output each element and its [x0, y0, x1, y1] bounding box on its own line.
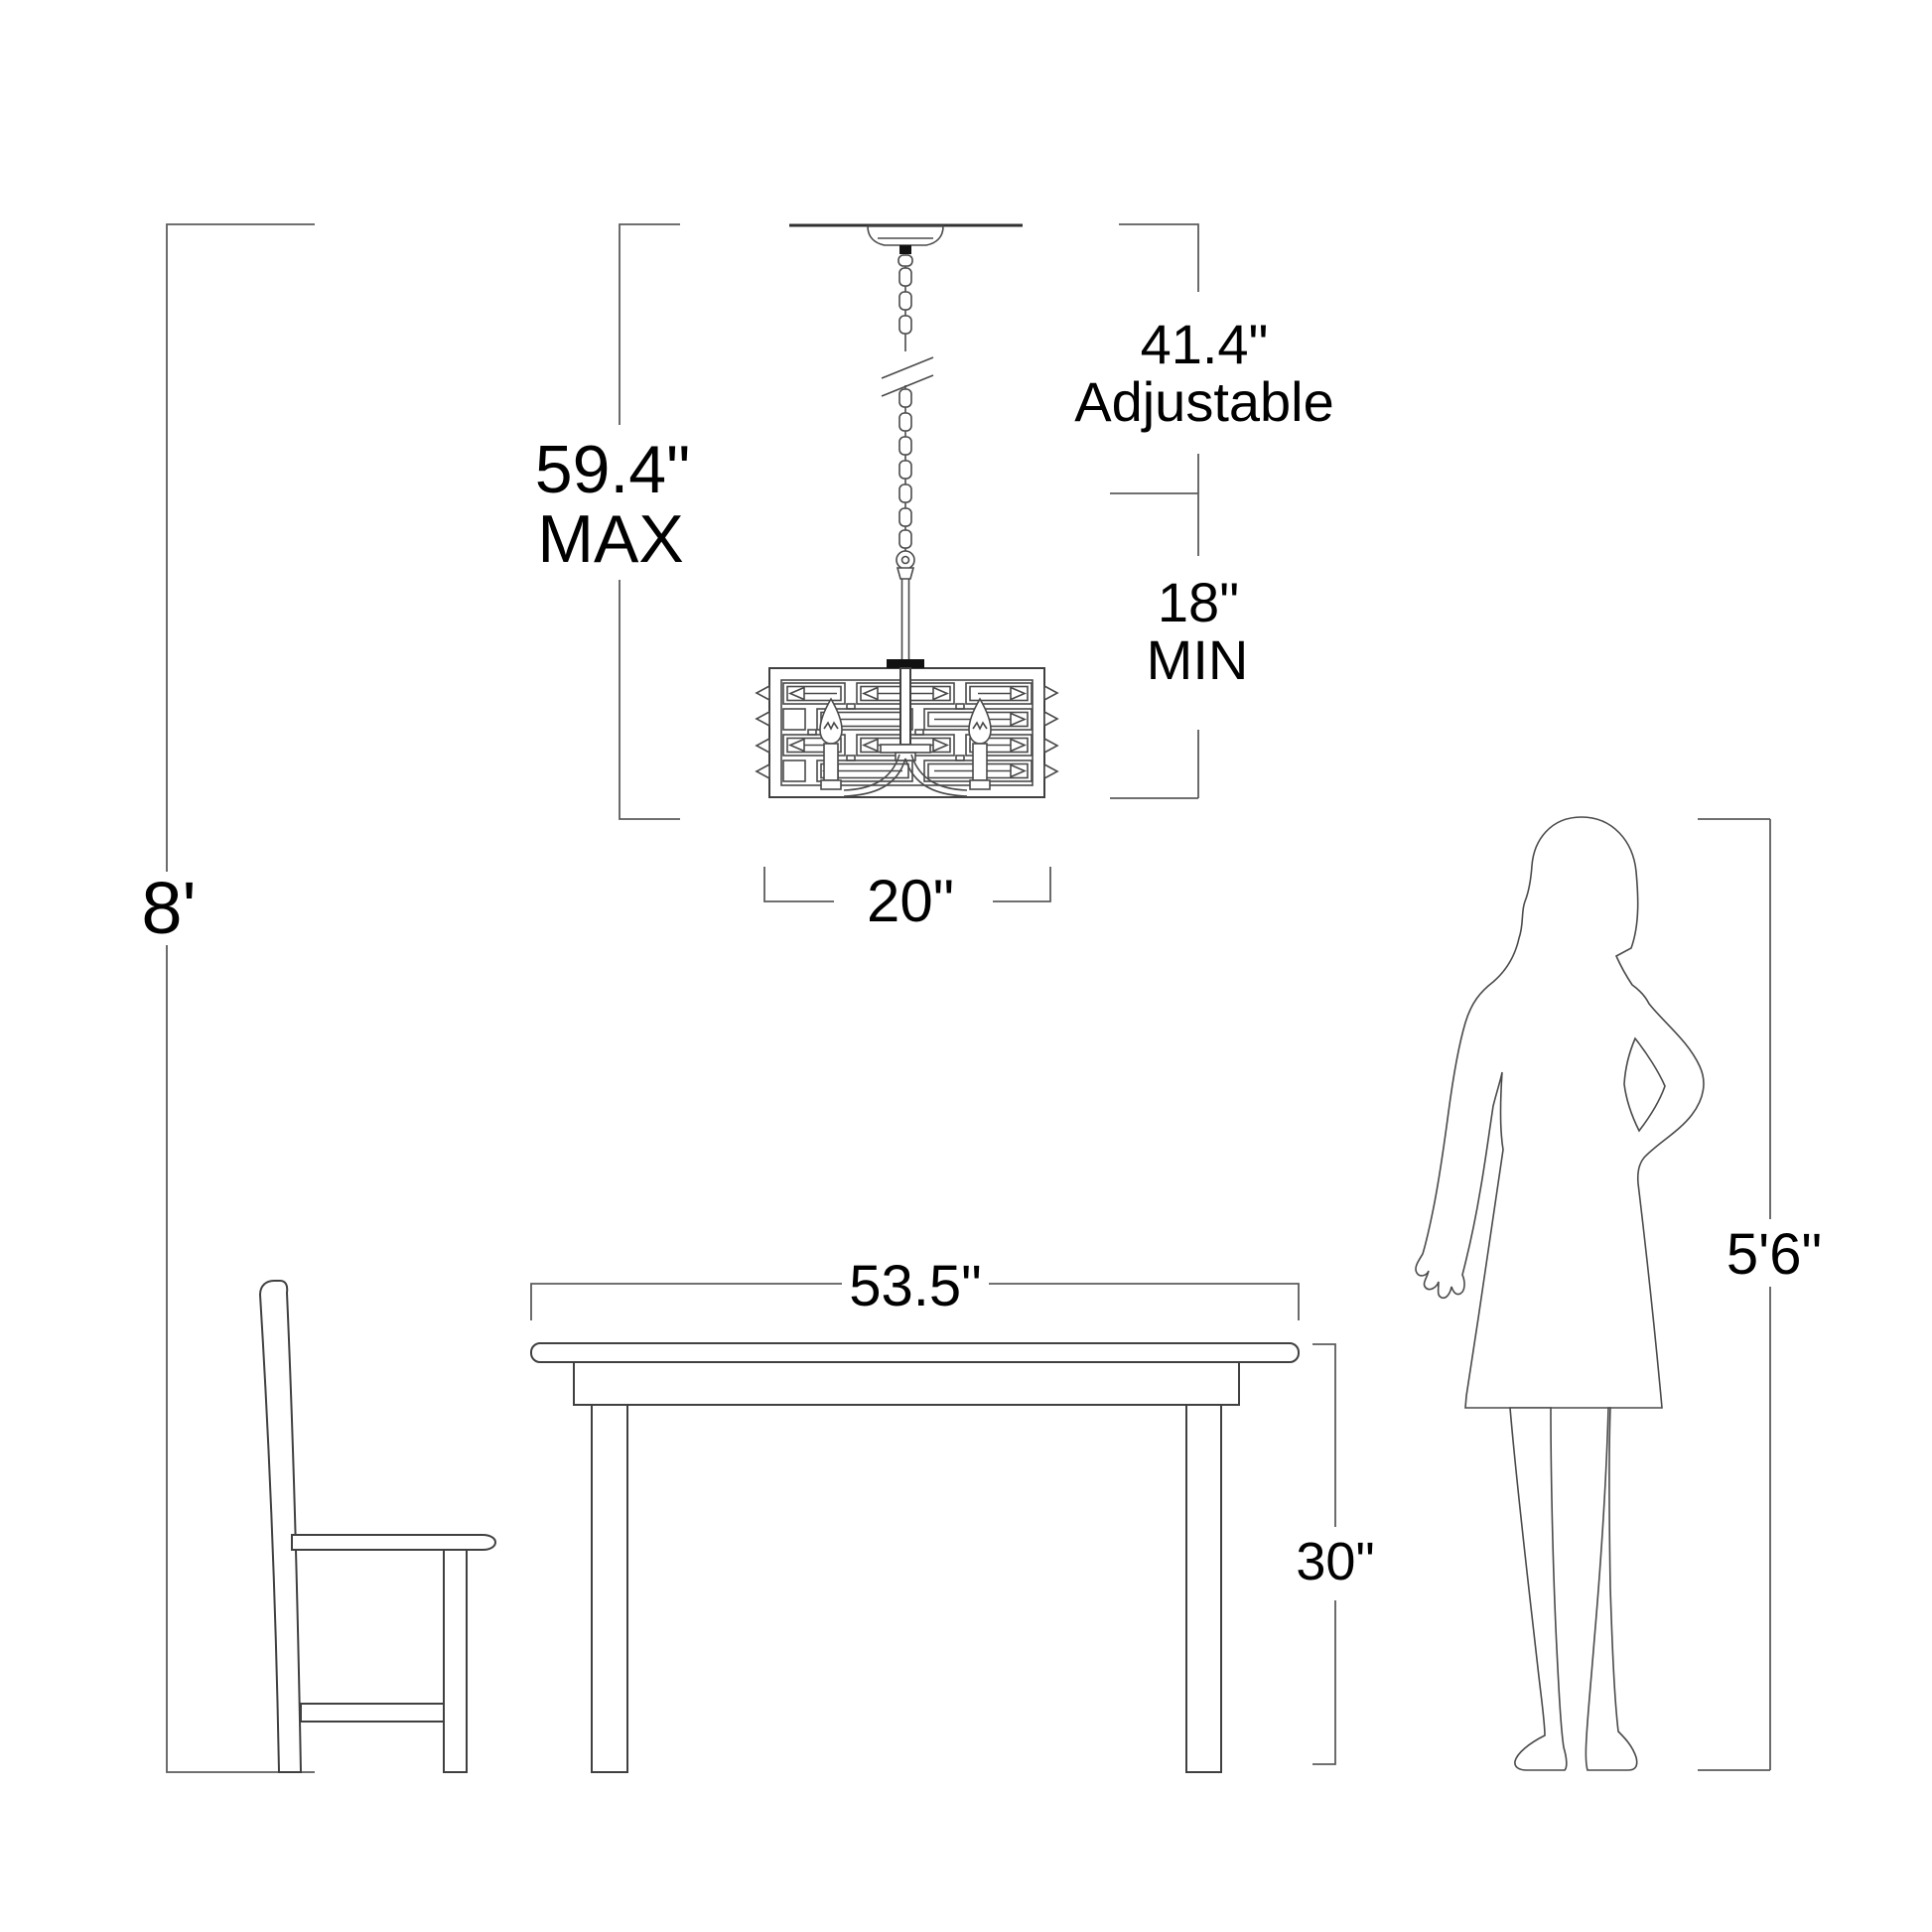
chair-front-leg [444, 1550, 467, 1772]
dining-table [531, 1343, 1299, 1772]
chain [899, 266, 911, 552]
dim-fixture-max: 59.4" MAX [535, 224, 691, 819]
min-value: 18" [1158, 571, 1239, 633]
table-leg-right [1186, 1405, 1221, 1772]
diagram-svg: 8' 59.4" MAX 41.4" Adjustable 18" MIN [0, 0, 1932, 1932]
dim-min: 18" MIN [1110, 571, 1248, 798]
fixture-max-value: 59.4" [535, 432, 691, 507]
chair-stretcher [301, 1704, 444, 1722]
swivel [897, 551, 914, 579]
dim-table-height: 30" [1296, 1344, 1374, 1764]
dim-table-width: 53.5" [531, 1254, 1299, 1320]
table-apron [574, 1362, 1239, 1405]
person-body-outline [1416, 817, 1704, 1408]
candle-bulb-right [969, 699, 991, 789]
chair [260, 1281, 495, 1772]
dim-adjustable: 41.4" Adjustable [1074, 224, 1334, 556]
shade-left-prisms [757, 686, 769, 778]
min-caption: MIN [1147, 628, 1249, 691]
shade-right-prisms [1044, 686, 1057, 778]
shade-width-label: 20" [867, 868, 954, 934]
adjustable-caption: Adjustable [1074, 370, 1334, 433]
table-leg-left [592, 1405, 627, 1772]
fixture-max-caption: MAX [537, 501, 683, 577]
adjustable-value: 41.4" [1141, 313, 1269, 375]
canopy [868, 226, 943, 266]
table-top [531, 1343, 1299, 1362]
chair-back [260, 1281, 301, 1772]
candle-bulb-left [820, 699, 842, 789]
dimension-diagram: 8' 59.4" MAX 41.4" Adjustable 18" MIN [0, 0, 1932, 1932]
down-rod [902, 579, 909, 661]
person-leg-left [1510, 1408, 1567, 1770]
person-leg-right [1586, 1408, 1636, 1770]
canopy-nut [899, 245, 911, 254]
person-height-label: 5'6" [1726, 1222, 1822, 1287]
table-width-label: 53.5" [849, 1254, 981, 1318]
table-height-label: 30" [1296, 1532, 1374, 1591]
dim-shade-width: 20" [764, 867, 1050, 934]
ceiling-height-label: 8' [141, 867, 196, 949]
chair-seat [292, 1535, 495, 1550]
dim-person-height: 5'6" [1698, 819, 1822, 1770]
person-silhouette [1416, 817, 1704, 1770]
fixture-stem [881, 659, 930, 760]
